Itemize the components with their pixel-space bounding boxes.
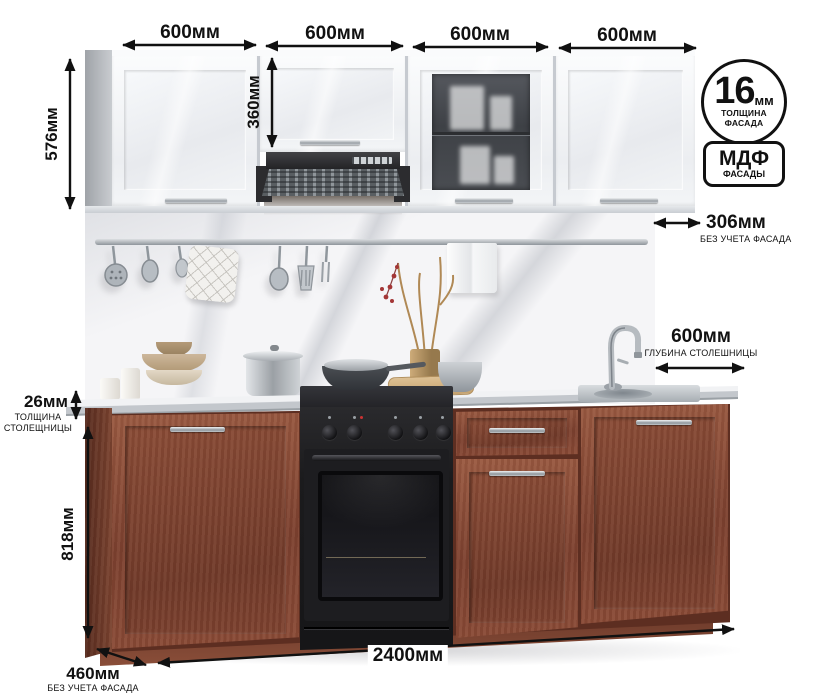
stove-knob (436, 425, 451, 440)
dim-upper-door-height: 360мм (244, 75, 264, 129)
dim-width-2: 600мм (305, 23, 365, 45)
stove-knob (413, 425, 428, 440)
base-cabinet-door-2 (456, 459, 578, 638)
hood-filter-mesh (262, 169, 404, 196)
door-handle (455, 198, 513, 203)
stove-knob (322, 425, 337, 440)
dim-base-depth: 460мм (66, 664, 120, 684)
dim-width-4: 600мм (597, 25, 657, 47)
oven-door (304, 449, 449, 621)
oven-handle (312, 455, 441, 461)
upper-cabinet-door-1 (112, 56, 258, 206)
stove (300, 407, 453, 650)
upper-side-panel (85, 50, 112, 212)
dim-counter-thickness-note1: ТОЛЩИНА (8, 412, 68, 422)
glass-insert (432, 74, 530, 190)
material-name: МДФ (719, 148, 769, 169)
dim-width-1: 600мм (160, 22, 220, 44)
dim-counter-depth: 600мм (671, 326, 731, 348)
upper-cabinet-door-2 (260, 56, 406, 152)
base-cabinet-door-1 (112, 413, 299, 649)
base-side-panel (85, 408, 112, 658)
dim-base-height: 818мм (58, 507, 78, 561)
door-handle (165, 198, 227, 203)
door-handle (300, 140, 360, 145)
base-cabinet-door-3 (581, 404, 728, 624)
kitchen-dimension-diagram: 600мм 600мм 600мм 600мм 576мм 360мм 818м… (0, 0, 816, 700)
door-handle (636, 420, 692, 425)
upper-cabinet-door-3-glass (408, 56, 554, 206)
facade-thickness-value: 16 (714, 75, 754, 107)
material-caption: ФАСАДЫ (723, 169, 765, 181)
hood-buttons (352, 157, 392, 164)
stove-knob (388, 425, 403, 440)
dim-counter-depth-note: ГЛУБИНА СТОЛЕШНИЦЫ (645, 348, 758, 358)
stove-knob (347, 425, 362, 440)
drawer-handle (489, 428, 545, 433)
dim-base-depth-note: БЕЗ УЧЕТА ФАСАДА (47, 683, 138, 693)
dim-width-3: 600мм (450, 24, 510, 46)
facade-thickness-unit: мм (755, 93, 774, 108)
door-handle (489, 471, 545, 476)
upper-cabinet-bottom-strip (85, 206, 695, 213)
dim-total-width: 2400мм (368, 645, 448, 667)
dim-upper-height: 576мм (42, 107, 62, 161)
facade-thickness-caption1: ТОЛЩИНА (721, 108, 767, 119)
facade-thickness-badge: 16 мм ТОЛЩИНА ФАСАДА (701, 59, 787, 145)
upper-cabinet-door-4 (556, 56, 695, 206)
dim-counter-thickness: 26мм (16, 392, 68, 412)
facade-thickness-caption2: ФАСАДА (725, 118, 764, 129)
oven-window (318, 471, 443, 601)
door-handle (600, 198, 658, 203)
dim-upper-depth: 306мм (706, 212, 766, 234)
stove-drawer (304, 627, 449, 629)
door-handle (170, 427, 225, 432)
dim-counter-thickness-note2: СТОЛЕЩНИЦЫ (0, 423, 76, 433)
material-badge: МДФ ФАСАДЫ (703, 141, 785, 187)
gas-cooktop (300, 386, 453, 408)
power-indicator (360, 416, 363, 419)
potholder (184, 245, 239, 304)
dim-upper-depth-note: БЕЗ УЧЕТА ФАСАДА (700, 234, 791, 244)
base-cabinet-drawer (456, 410, 578, 456)
